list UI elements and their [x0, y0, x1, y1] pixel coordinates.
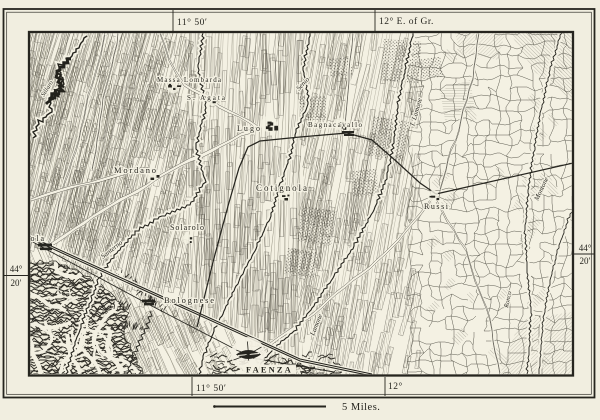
- svg-text:12°: 12°: [388, 381, 403, 392]
- svg-text:11° 50′: 11° 50′: [196, 383, 226, 394]
- svg-text:Mordano: Mordano: [114, 165, 156, 175]
- svg-text:Solarolo: Solarolo: [170, 223, 204, 232]
- svg-text:Russi: Russi: [424, 202, 449, 211]
- svg-text:44°: 44°: [579, 243, 592, 253]
- svg-text:5 Miles.: 5 Miles.: [342, 402, 380, 413]
- svg-text:Cotignola: Cotignola: [256, 183, 307, 193]
- svg-text:12° E. of Gr.: 12° E. of Gr.: [379, 16, 434, 27]
- svg-text:Bolognese: Bolognese: [164, 295, 214, 305]
- svg-text:44°: 44°: [10, 264, 23, 274]
- svg-text:Bagnacavallo: Bagnacavallo: [308, 121, 363, 129]
- svg-text:20′: 20′: [580, 256, 591, 266]
- svg-text:11° 50′: 11° 50′: [177, 17, 207, 28]
- svg-text:20′: 20′: [11, 278, 22, 288]
- svg-text:FAENZA: FAENZA: [246, 365, 292, 375]
